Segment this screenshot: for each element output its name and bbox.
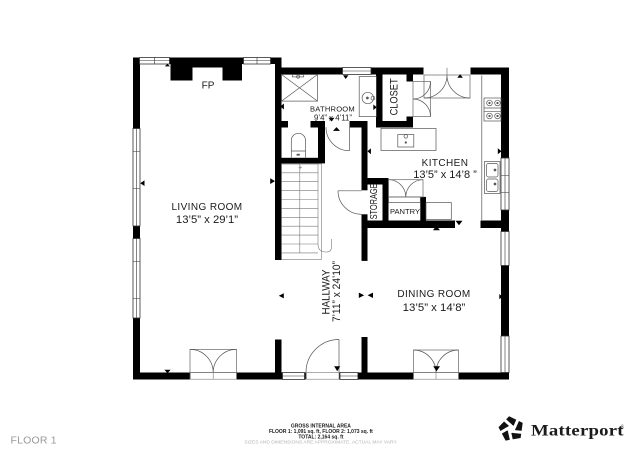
svg-text:PANTRY: PANTRY [390,207,420,216]
svg-text:7’11” x 24’10”: 7’11” x 24’10” [331,261,343,322]
svg-text:13’5” x 29’1”: 13’5” x 29’1” [176,214,238,226]
svg-text:FP: FP [202,81,215,92]
svg-text:STORAGE: STORAGE [369,183,380,219]
svg-text:9’4” x 4’11”: 9’4” x 4’11” [314,113,352,122]
svg-text:Matterport: Matterport [531,421,624,440]
svg-text:13’5” x 14’8”: 13’5” x 14’8” [403,302,466,314]
svg-text:CLOSET: CLOSET [388,78,400,115]
svg-text:®: ® [621,425,625,431]
svg-text:FLOOR 1: FLOOR 1 [11,434,57,446]
svg-text:DINING ROOM: DINING ROOM [397,289,470,300]
svg-text:KITCHEN: KITCHEN [422,158,469,169]
svg-text:13’5” x 14’8 ”: 13’5” x 14’8 ” [413,169,477,181]
svg-text:SIZES AND DIMENSIONS ARE APPRO: SIZES AND DIMENSIONS ARE APPROXIMATE, AC… [244,439,397,445]
svg-text:LIVING ROOM: LIVING ROOM [171,202,242,213]
svg-text:BATHROOM: BATHROOM [310,105,355,114]
